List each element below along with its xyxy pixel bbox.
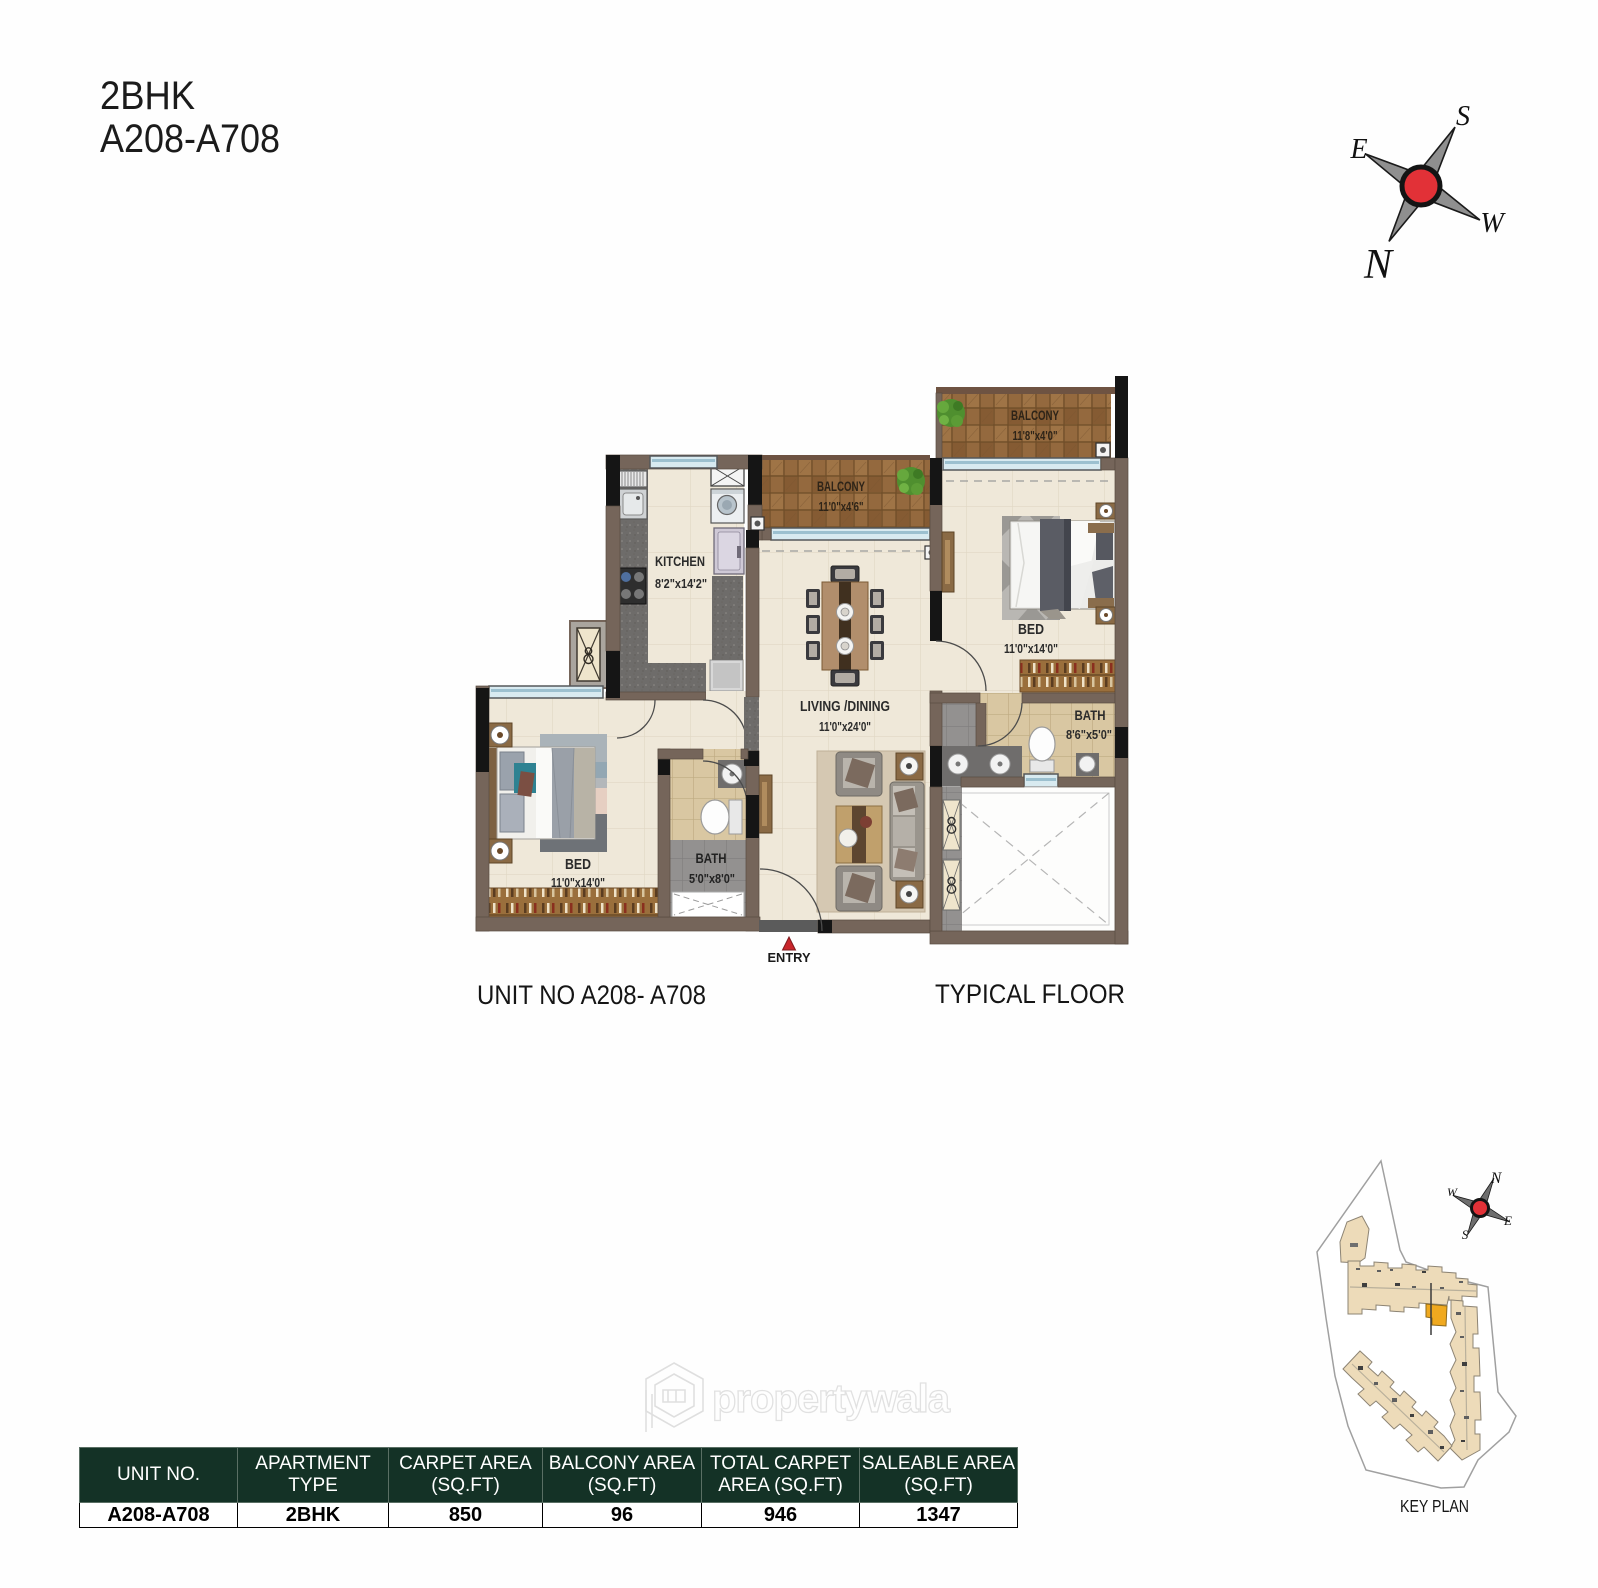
svg-text:8'6"x5'0": 8'6"x5'0" bbox=[1066, 727, 1112, 742]
svg-text:TYPICAL FLOOR: TYPICAL FLOOR bbox=[935, 979, 1125, 1009]
svg-text:BATH: BATH bbox=[1075, 708, 1106, 723]
svg-text:E: E bbox=[1503, 1213, 1512, 1228]
svg-text:UNIT NO A208- A708: UNIT NO A208- A708 bbox=[477, 980, 706, 1010]
svg-text:E: E bbox=[1349, 134, 1367, 165]
svg-text:W: W bbox=[1447, 1185, 1458, 1199]
svg-text:S: S bbox=[1456, 101, 1470, 132]
svg-text:N: N bbox=[1363, 242, 1394, 288]
svg-text:propertywala: propertywala bbox=[712, 1377, 951, 1421]
svg-text:8'2"x14'2": 8'2"x14'2" bbox=[655, 576, 707, 591]
svg-text:BALCONY: BALCONY bbox=[817, 478, 865, 494]
svg-text:N: N bbox=[1490, 1170, 1503, 1187]
svg-text:A208-A708: A208-A708 bbox=[100, 117, 280, 161]
svg-text:ENTRY: ENTRY bbox=[768, 950, 811, 965]
svg-text:5'0"x8'0": 5'0"x8'0" bbox=[689, 871, 735, 886]
svg-text:W: W bbox=[1480, 208, 1506, 239]
svg-text:KEY PLAN: KEY PLAN bbox=[1400, 1496, 1469, 1516]
svg-text:11'0"x24'0": 11'0"x24'0" bbox=[819, 719, 871, 734]
svg-text:BED: BED bbox=[565, 857, 591, 873]
svg-text:BATH: BATH bbox=[696, 851, 727, 866]
svg-text:2BHK: 2BHK bbox=[100, 74, 195, 118]
svg-text:11'8"x4'0": 11'8"x4'0" bbox=[1013, 428, 1058, 443]
svg-text:11'0"x4'6": 11'0"x4'6" bbox=[819, 499, 864, 514]
svg-text:BED: BED bbox=[1018, 622, 1044, 638]
svg-text:S: S bbox=[1462, 1227, 1469, 1242]
svg-text:BALCONY: BALCONY bbox=[1011, 407, 1059, 423]
svg-text:LIVING /DINING: LIVING /DINING bbox=[800, 699, 890, 715]
svg-text:11'0"x14'0": 11'0"x14'0" bbox=[1004, 641, 1058, 656]
svg-text:KITCHEN: KITCHEN bbox=[655, 553, 705, 569]
